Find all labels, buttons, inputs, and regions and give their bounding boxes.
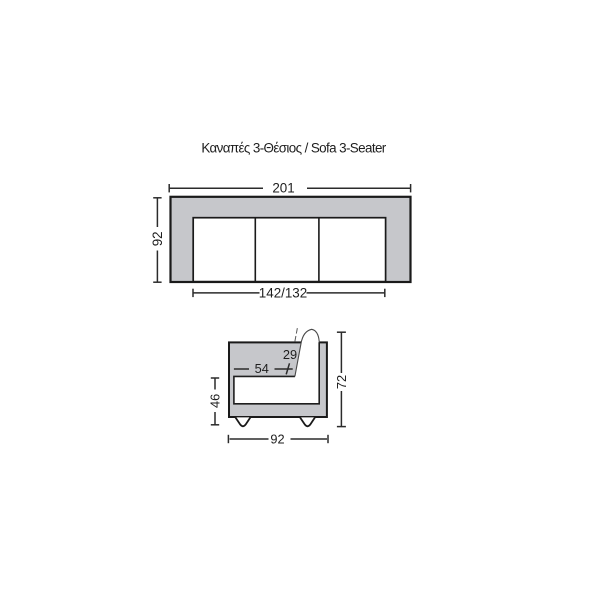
svg-text:Καναπές 3-Θέσιος / Sofa 3-Seat: Καναπές 3-Θέσιος / Sofa 3-Seater (201, 140, 386, 155)
svg-text:46: 46 (208, 394, 223, 408)
svg-text:54: 54 (255, 361, 269, 376)
svg-text:29: 29 (283, 347, 297, 362)
svg-text:92: 92 (150, 231, 165, 246)
svg-text:201: 201 (272, 180, 294, 195)
svg-text:142/132: 142/132 (259, 285, 307, 300)
svg-text:72: 72 (334, 375, 349, 389)
svg-text:92: 92 (270, 431, 284, 446)
